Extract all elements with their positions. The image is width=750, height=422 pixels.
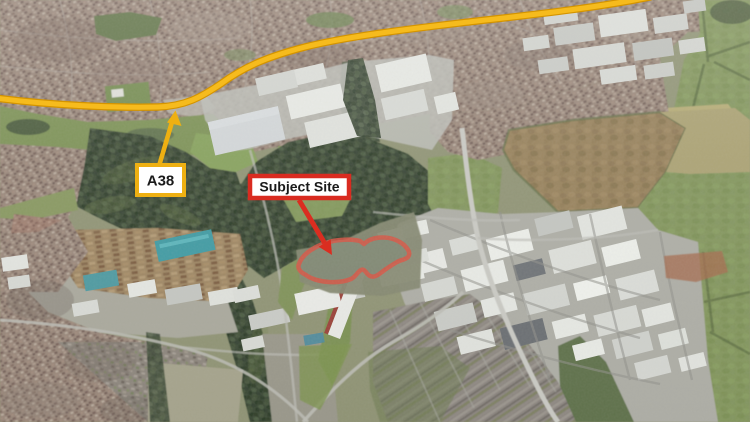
svg-text:A38: A38 bbox=[147, 173, 175, 190]
svg-text:Subject Site: Subject Site bbox=[259, 178, 339, 194]
